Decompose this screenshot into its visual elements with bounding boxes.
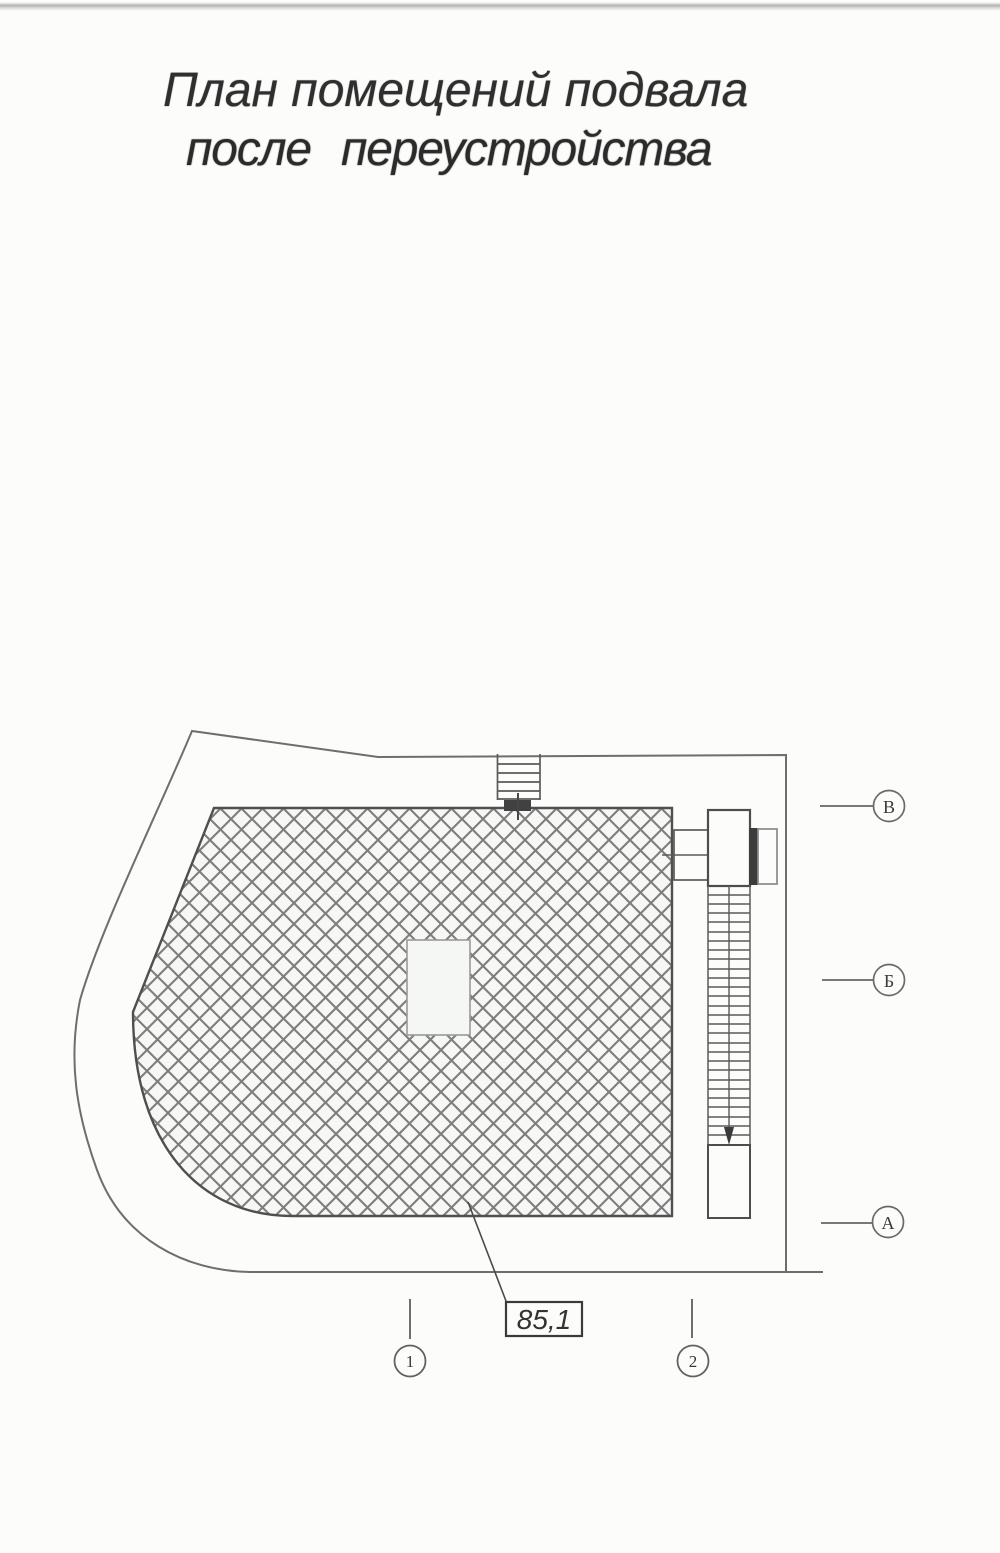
- svg-text:85,1: 85,1: [517, 1304, 572, 1335]
- svg-text:А: А: [882, 1213, 895, 1233]
- svg-text:2: 2: [689, 1352, 698, 1371]
- svg-text:Б: Б: [884, 971, 894, 991]
- svg-text:В: В: [883, 797, 895, 817]
- svg-text:1: 1: [406, 1352, 415, 1371]
